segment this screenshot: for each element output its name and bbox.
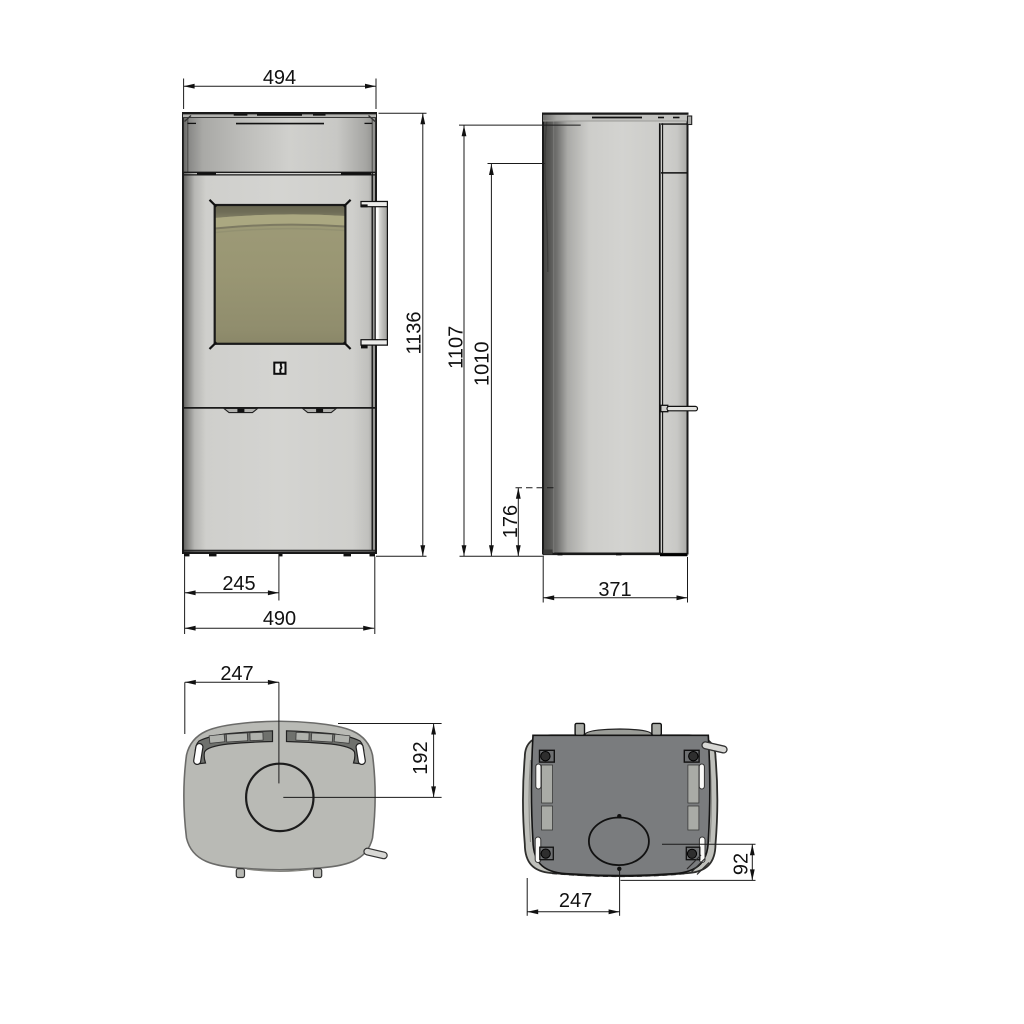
svg-text:1010: 1010 xyxy=(472,341,494,386)
svg-text:92: 92 xyxy=(730,853,752,875)
svg-text:247: 247 xyxy=(220,663,253,685)
svg-text:176: 176 xyxy=(500,505,522,538)
svg-text:192: 192 xyxy=(410,741,432,774)
svg-text:245: 245 xyxy=(222,573,255,595)
svg-text:1107: 1107 xyxy=(445,326,467,369)
svg-text:1136: 1136 xyxy=(404,311,426,354)
svg-text:371: 371 xyxy=(598,579,631,601)
svg-text:494: 494 xyxy=(263,67,296,89)
svg-text:247: 247 xyxy=(559,890,592,912)
svg-text:490: 490 xyxy=(263,608,296,630)
